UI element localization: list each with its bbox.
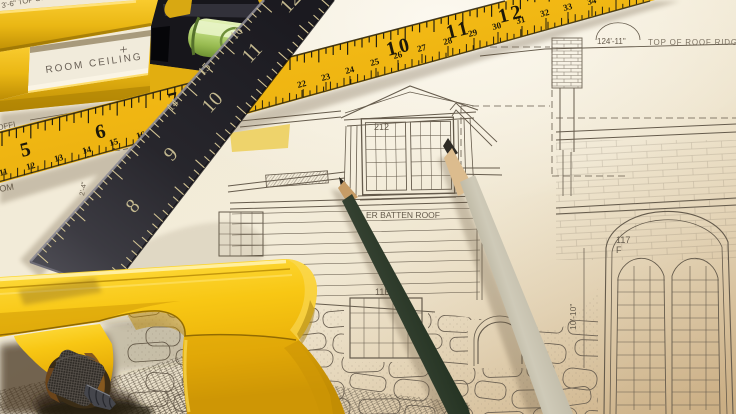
svg-text:TOP OF ROOF RIDG: TOP OF ROOF RIDG [648,38,736,47]
svg-text:F: F [616,245,622,255]
svg-text:124'-11": 124'-11" [597,37,626,46]
svg-text:117: 117 [616,235,630,245]
svg-text:ER BATTEN ROOF: ER BATTEN ROOF [366,210,440,220]
svg-text:212: 212 [374,122,389,132]
